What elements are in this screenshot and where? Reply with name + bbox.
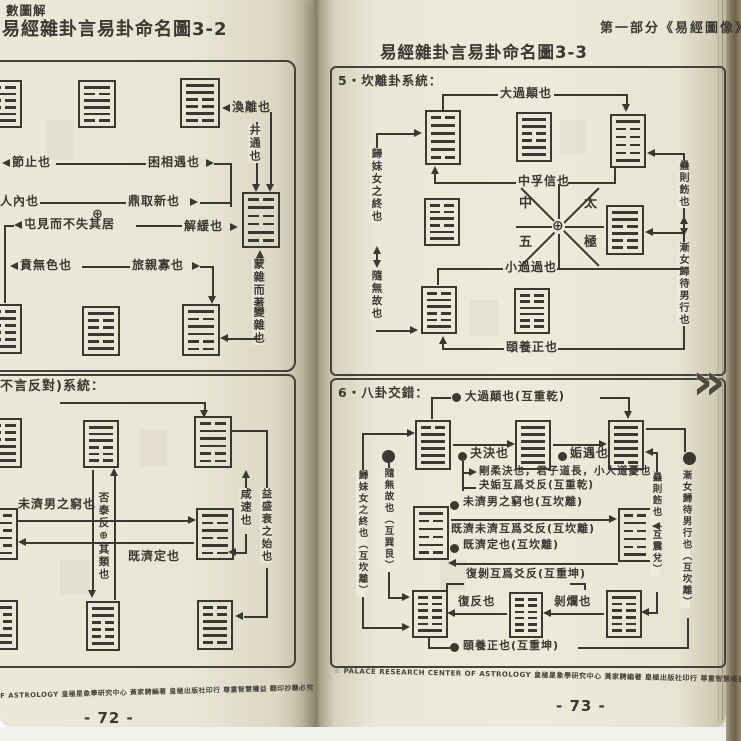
line bbox=[437, 270, 439, 285]
arrow bbox=[208, 296, 216, 304]
line bbox=[455, 613, 507, 615]
arrow bbox=[222, 104, 230, 112]
hexagram-lu bbox=[182, 304, 220, 356]
bullet bbox=[382, 450, 395, 463]
label-zhongfu: 中孚信也 bbox=[518, 175, 570, 188]
line bbox=[462, 487, 476, 489]
label-yiyang: 頤養正也 bbox=[506, 341, 558, 354]
label-sui6: 隨無故也（互巽艮） bbox=[382, 468, 392, 572]
line bbox=[40, 202, 126, 204]
hexagram-sun bbox=[0, 600, 18, 650]
line bbox=[212, 266, 214, 298]
arrow bbox=[252, 184, 260, 192]
bullet bbox=[458, 452, 467, 461]
hexagram-ding bbox=[78, 80, 116, 128]
page-number: - 72 - bbox=[84, 710, 134, 727]
label-weiji6: 未濟男之窮也(互坎離) bbox=[463, 496, 583, 508]
label-gou: 姤遇也 bbox=[570, 447, 609, 460]
arrow bbox=[192, 262, 200, 270]
running-header: 第一部分《易經圖像》 bbox=[600, 22, 741, 36]
line bbox=[236, 552, 247, 554]
star-char-tai: 太 bbox=[584, 197, 598, 211]
line bbox=[244, 616, 268, 618]
arrow bbox=[680, 216, 688, 224]
hexagram-ben bbox=[82, 306, 120, 356]
line bbox=[431, 397, 433, 419]
line bbox=[649, 612, 658, 614]
bullet bbox=[450, 501, 459, 510]
star-char-ji: 極 bbox=[584, 236, 598, 250]
label-xie: 解緩也 bbox=[184, 220, 223, 233]
label-yi: 益盛衰之始也 bbox=[260, 488, 272, 563]
hexagram-heng bbox=[197, 600, 233, 650]
label-xiaoguo: 小過過也 bbox=[505, 261, 557, 274]
arrow bbox=[230, 223, 238, 231]
line bbox=[114, 474, 116, 600]
line bbox=[646, 428, 686, 430]
hexagram-sui bbox=[421, 286, 457, 334]
arrow bbox=[10, 262, 18, 270]
label-xian: 咸速也 bbox=[239, 488, 251, 527]
hexagram-zhun bbox=[0, 304, 22, 354]
label-fu: 復反也 bbox=[458, 595, 496, 608]
hexagram-xiaoguo bbox=[514, 288, 550, 334]
line bbox=[428, 647, 450, 649]
line bbox=[200, 202, 230, 204]
label-jian6: 漸女歸待男行也（互坎離） bbox=[680, 470, 690, 608]
bullet bbox=[452, 393, 461, 402]
hexagram-guai bbox=[415, 420, 451, 470]
star-char-zhong: 中 bbox=[519, 197, 533, 211]
label-gangrou: 剛柔決也，君子道長，小人道憂也。 bbox=[479, 466, 663, 478]
line bbox=[455, 563, 618, 565]
line bbox=[82, 266, 130, 268]
label-jie: 節止也 bbox=[12, 156, 51, 169]
arrow bbox=[220, 334, 228, 342]
line bbox=[376, 133, 378, 148]
bullet bbox=[450, 643, 459, 652]
hexagram-bo bbox=[606, 590, 642, 638]
line bbox=[434, 182, 516, 184]
line bbox=[270, 112, 272, 186]
arrow bbox=[645, 228, 653, 236]
line bbox=[431, 397, 451, 399]
arrow bbox=[624, 411, 632, 419]
hexagram-yi bbox=[86, 601, 120, 651]
line bbox=[245, 478, 247, 488]
line bbox=[614, 168, 616, 182]
label-guimei6: 歸妹女之終也（互坎離） bbox=[356, 470, 366, 597]
hexagram-jie bbox=[0, 80, 22, 128]
line bbox=[684, 428, 686, 452]
label-sui: 隨無故也 bbox=[370, 270, 382, 320]
arrow bbox=[448, 559, 456, 567]
arrow bbox=[543, 609, 551, 617]
line bbox=[442, 94, 498, 96]
hexagram-zhongfu bbox=[516, 112, 552, 162]
label-huan: 渙離也 bbox=[232, 101, 271, 114]
hexagram-guimei bbox=[424, 198, 460, 246]
line bbox=[656, 452, 658, 472]
arrow bbox=[188, 516, 196, 524]
line bbox=[446, 583, 464, 585]
label-guai: 夬決也 bbox=[470, 447, 509, 460]
line bbox=[451, 519, 611, 521]
arrow bbox=[14, 221, 22, 229]
label-ben: 賁無色也 bbox=[20, 259, 72, 272]
line bbox=[228, 338, 260, 340]
hexagram-jiji6 bbox=[618, 508, 652, 562]
hexagram-huan bbox=[180, 78, 220, 128]
line bbox=[232, 430, 268, 432]
arrow bbox=[206, 159, 214, 167]
line bbox=[557, 268, 683, 270]
line bbox=[266, 430, 268, 488]
line bbox=[551, 613, 604, 615]
arrow bbox=[256, 250, 264, 258]
section6-heading: 6・八卦交錯： bbox=[338, 386, 429, 400]
hexagram-tai bbox=[0, 418, 22, 468]
label-guaigou: 夬姤互爲爻反(互重乾) bbox=[479, 480, 594, 492]
page-edge-shadow bbox=[726, 0, 741, 741]
label-fubo: 復剝互爲爻反(互重坤) bbox=[466, 568, 586, 580]
label-jiwei: 既濟未濟互爲爻反(互坎離) bbox=[451, 523, 595, 535]
bullet bbox=[450, 544, 459, 553]
label-jiji6: 既濟定也(互坎離) bbox=[463, 539, 559, 551]
arrow bbox=[190, 198, 198, 206]
line bbox=[4, 225, 6, 303]
star-char-wu: 五 bbox=[519, 236, 533, 250]
line bbox=[362, 627, 404, 629]
line bbox=[554, 94, 628, 96]
label-jian: 漸女歸待男行也 bbox=[677, 242, 688, 326]
label-kunxg: 困相遇也 bbox=[148, 156, 200, 169]
arrow bbox=[647, 149, 655, 157]
label-daguo6: 大過顛也(互重乾) bbox=[465, 390, 565, 403]
line bbox=[655, 153, 685, 155]
arrow bbox=[410, 326, 418, 334]
next-page-icon[interactable]: » bbox=[692, 352, 726, 412]
arrow bbox=[266, 184, 274, 192]
hexagram-pi bbox=[83, 420, 119, 468]
arrow bbox=[431, 166, 439, 174]
label-jiji: 既濟定也 bbox=[128, 550, 180, 563]
label-guimei: 歸妹女之終也 bbox=[370, 148, 382, 223]
line bbox=[376, 330, 412, 332]
hexagram-xian bbox=[194, 416, 232, 468]
page-title: 易經雜卦言易卦命名圖3-2 bbox=[2, 20, 228, 40]
line bbox=[266, 568, 268, 618]
label-daguo: 大過顛也 bbox=[500, 87, 552, 100]
line bbox=[656, 592, 658, 614]
line bbox=[568, 182, 616, 184]
hexagram-fu bbox=[412, 590, 448, 638]
line bbox=[653, 232, 683, 234]
bullet bbox=[683, 452, 696, 465]
line bbox=[376, 133, 416, 135]
line bbox=[437, 268, 503, 270]
hexagram-weiji6 bbox=[413, 506, 449, 560]
label-jiaren: 人內也 bbox=[0, 195, 39, 208]
arrow bbox=[402, 593, 410, 601]
running-header-fragment: 數圖解 bbox=[6, 4, 47, 18]
label-yi6: 頤養正也(互重坤) bbox=[463, 640, 559, 652]
label-weiji: 未濟男之窮也 bbox=[18, 498, 96, 511]
line bbox=[136, 225, 182, 227]
arrow bbox=[641, 608, 649, 616]
line bbox=[600, 397, 630, 399]
page-title: 易經雜卦言易卦命名圖3-3 bbox=[380, 44, 588, 62]
arrow bbox=[242, 470, 250, 478]
open-book-photo: 數圖解 易經雜卦言易卦命名圖3-2 渙離也 井通也 節止也 困相遇也 人內也 鼎… bbox=[0, 0, 741, 741]
hexagram-jiji bbox=[0, 508, 18, 560]
arrow bbox=[228, 548, 236, 556]
line bbox=[578, 647, 689, 649]
label-pitai: 否泰反⊕其類也 bbox=[97, 492, 109, 581]
arrow bbox=[402, 623, 410, 631]
photo-background bbox=[0, 727, 726, 741]
label-meng: 蒙雜而著 bbox=[252, 258, 264, 310]
label-jing: 井通也 bbox=[248, 124, 260, 163]
line bbox=[363, 433, 407, 435]
label-zhun: 屯見而不失其居 bbox=[24, 218, 115, 231]
line bbox=[245, 534, 247, 554]
line bbox=[230, 163, 232, 207]
arrow bbox=[407, 429, 415, 437]
hexagram-daguo bbox=[425, 110, 461, 165]
arrow bbox=[2, 159, 10, 167]
hexagram-yi2 bbox=[610, 114, 646, 168]
arrow bbox=[652, 522, 660, 530]
line bbox=[570, 583, 586, 585]
line bbox=[60, 402, 206, 404]
arrow bbox=[622, 104, 630, 112]
page-number: - 73 - bbox=[556, 698, 606, 715]
hexagram-qian bbox=[515, 420, 551, 470]
hexagram-kun bbox=[509, 592, 543, 638]
line bbox=[92, 470, 94, 592]
arrow bbox=[110, 468, 118, 476]
arrow bbox=[18, 538, 26, 546]
section-header: 不言反對)系統： bbox=[0, 380, 105, 394]
line bbox=[558, 348, 685, 350]
taiji-center-symbol: ⊕ bbox=[552, 219, 565, 234]
label-ding: 鼎取新也 bbox=[128, 195, 180, 208]
hexagram-jian bbox=[606, 205, 644, 255]
hexagram-gou bbox=[608, 420, 644, 470]
arrow bbox=[373, 260, 381, 268]
label-bo: 剝爛也 bbox=[554, 595, 592, 608]
line bbox=[687, 618, 689, 648]
arrow bbox=[469, 468, 477, 476]
label-lu: 旅親寡也 bbox=[132, 259, 184, 272]
arrow bbox=[235, 612, 243, 620]
bullet bbox=[558, 452, 567, 461]
arrow bbox=[609, 515, 617, 523]
line bbox=[56, 163, 146, 165]
section5-heading: 5・坎離卦系統： bbox=[338, 74, 442, 88]
line bbox=[442, 348, 504, 350]
line bbox=[442, 96, 444, 110]
arrow bbox=[447, 609, 455, 617]
line bbox=[628, 397, 630, 412]
label-gu: 蠱則飭也 bbox=[677, 160, 688, 208]
arrow bbox=[88, 590, 96, 598]
hexagram-kan bbox=[242, 192, 280, 248]
